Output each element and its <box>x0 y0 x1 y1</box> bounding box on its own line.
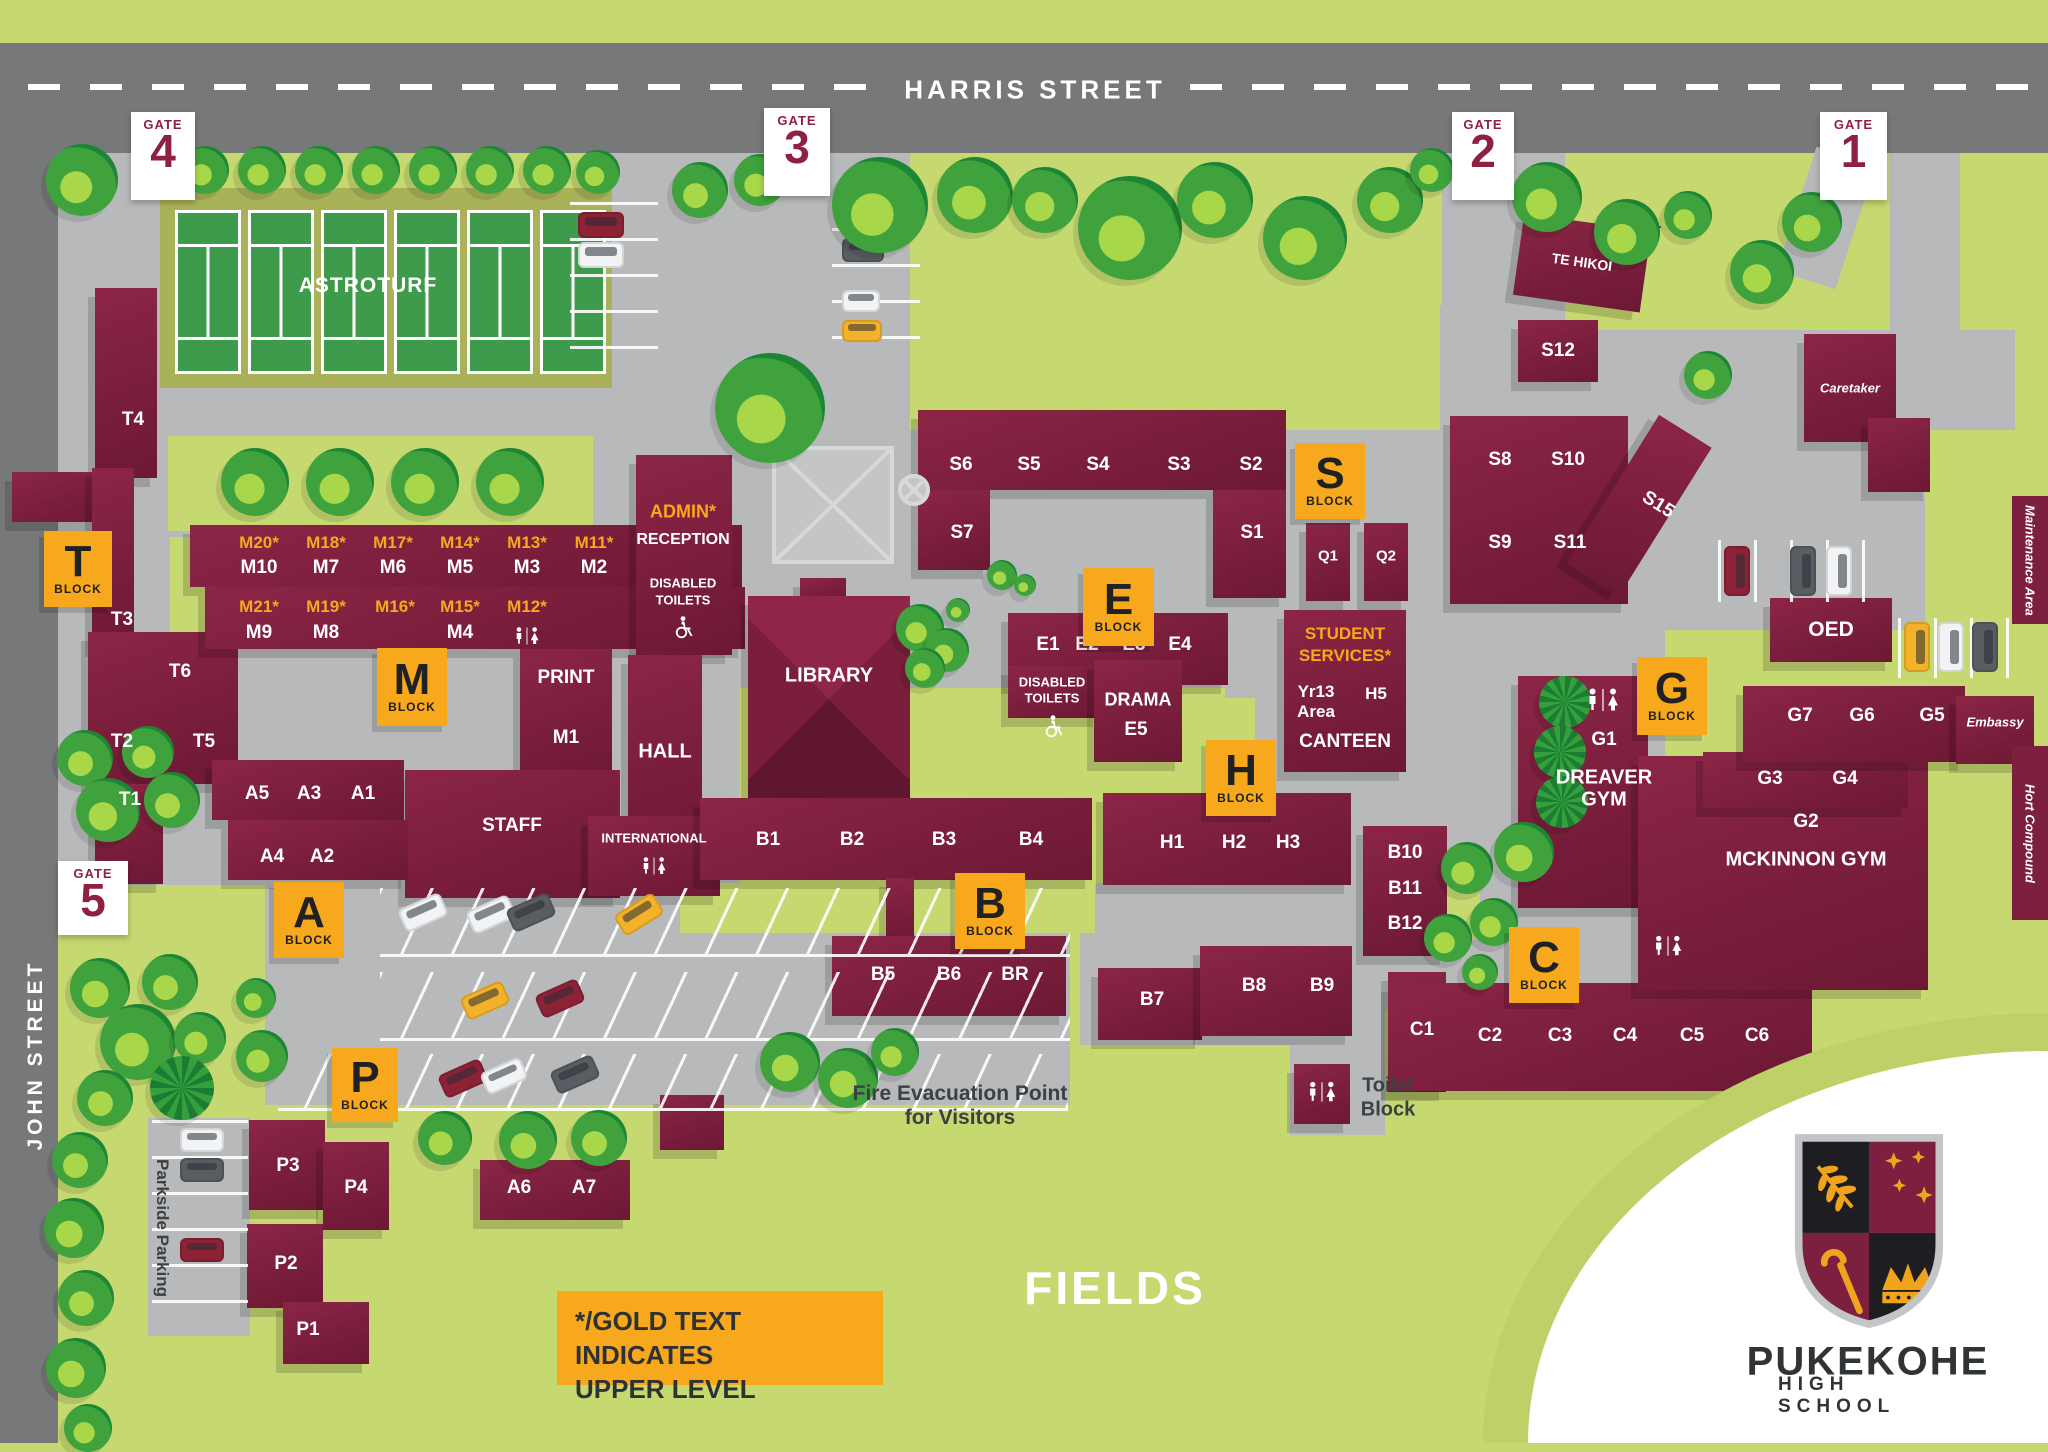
badge-letter: P <box>350 1058 379 1098</box>
badge-word: BLOCK <box>54 582 102 596</box>
room-label: T6 <box>169 661 191 683</box>
staff-label: STAFF <box>482 815 542 837</box>
road-centerline <box>1190 84 2048 90</box>
tree <box>1684 351 1732 399</box>
disabled-toilets-label: TOILETS <box>656 593 711 608</box>
tree <box>466 146 514 194</box>
badge-word: BLOCK <box>285 933 333 947</box>
oed-label: OED <box>1808 618 1854 642</box>
legend-gold-text: */GOLD TEXT INDICATES UPPER LEVEL <box>557 1291 883 1385</box>
hort-compound-label: Hort Compound <box>2023 784 2038 883</box>
room-label: C5 <box>1680 1025 1704 1047</box>
toilet-icon <box>1586 688 1620 712</box>
disabled-toilets-label: TOILETS <box>1025 691 1080 706</box>
car <box>842 320 882 342</box>
room-label: G3 <box>1757 768 1782 790</box>
room-label: G7 <box>1787 705 1812 727</box>
room-label: G5 <box>1919 705 1944 727</box>
gate-number: 3 <box>764 128 830 167</box>
tree <box>571 1110 627 1166</box>
room-label: G6 <box>1849 705 1874 727</box>
tree <box>1664 191 1712 239</box>
toilet-icon <box>1307 1081 1337 1102</box>
caretaker-label: Caretaker <box>1820 381 1880 396</box>
room-label-upper: M13* <box>507 533 547 553</box>
badge-p-block: PBLOCK <box>332 1048 398 1122</box>
gate-2-sign: GATE2 <box>1452 112 1514 200</box>
tree <box>1730 240 1794 304</box>
reception-label: RECEPTION <box>636 531 729 549</box>
badge-word: BLOCK <box>966 924 1014 938</box>
badge-letter: C <box>1528 938 1560 978</box>
badge-b-block: BBLOCK <box>955 873 1025 949</box>
tree <box>77 1070 133 1126</box>
car <box>1724 546 1750 596</box>
dreaver-gym-label: DREAVER <box>1556 767 1652 790</box>
room-label: M1 <box>553 727 579 749</box>
tennis-court <box>467 210 533 374</box>
room-label: B5 <box>871 964 895 986</box>
john-street-label: JOHN STREET <box>24 959 48 1150</box>
room-label-upper: M21* <box>239 597 279 617</box>
lawn <box>1925 430 2015 630</box>
room-label: H1 <box>1160 832 1184 854</box>
room-label: S12 <box>1541 340 1575 362</box>
tree <box>46 144 118 216</box>
tree <box>672 162 728 218</box>
room-label: C3 <box>1548 1025 1572 1047</box>
room-label: T5 <box>193 731 215 753</box>
car <box>578 212 624 238</box>
road-centerline <box>28 84 878 90</box>
embassy-label: Embassy <box>1966 715 2023 730</box>
tree <box>418 1111 472 1165</box>
tree <box>144 772 200 828</box>
legend-line1: */GOLD TEXT INDICATES <box>575 1305 865 1373</box>
yr13-area-label: Area <box>1297 702 1335 722</box>
tree <box>409 146 457 194</box>
badge-letter: S <box>1315 454 1344 494</box>
fire-evacuation-label: Fire Evacuation Point <box>853 1082 1068 1106</box>
room-label: M9 <box>246 622 272 644</box>
building-caretaker <box>1868 418 1930 492</box>
building-a6-a7 <box>480 1160 630 1220</box>
room-label: A2 <box>310 846 334 868</box>
room-label: S9 <box>1488 532 1511 554</box>
room-label: B6 <box>937 964 961 986</box>
badge-word: BLOCK <box>1217 791 1265 805</box>
room-label: A6 <box>507 1177 531 1199</box>
room-label: A1 <box>351 783 375 805</box>
room-label: S3 <box>1167 454 1190 476</box>
toilet-block-label: Toilet <box>1362 1075 1414 1098</box>
room-label: M4 <box>447 622 473 644</box>
tree <box>1410 148 1454 192</box>
room-label: B3 <box>932 829 956 851</box>
room-label: S2 <box>1239 454 1262 476</box>
badge-g-block: GBLOCK <box>1637 657 1707 735</box>
tree <box>1012 167 1078 233</box>
gate-number: 5 <box>58 881 128 920</box>
badge-letter: A <box>293 893 325 933</box>
mckinnon-gym-label: MCKINNON GYM <box>1725 849 1886 872</box>
car <box>578 242 624 268</box>
tree <box>832 157 928 253</box>
building-drama <box>1094 660 1182 762</box>
badge-c-block: CBLOCK <box>1509 927 1579 1003</box>
tennis-court <box>175 210 241 374</box>
building-s-block <box>1213 490 1286 598</box>
room-label-upper: M14* <box>440 533 480 553</box>
badge-h-block: HBLOCK <box>1206 740 1276 816</box>
room-label: H2 <box>1222 832 1246 854</box>
car <box>1972 622 1998 672</box>
badge-word: BLOCK <box>341 1098 389 1112</box>
building-library <box>748 596 910 802</box>
room-label-upper: M12* <box>507 597 547 617</box>
room-label: M10 <box>241 557 278 579</box>
tree <box>44 1198 104 1258</box>
tree <box>576 150 620 194</box>
tree <box>1462 954 1498 990</box>
tree <box>1512 162 1582 232</box>
tree <box>1263 196 1347 280</box>
admin-label: ADMIN* <box>650 502 716 523</box>
drama-label: DRAMA <box>1105 690 1172 711</box>
tree <box>295 146 343 194</box>
room-label: B4 <box>1019 829 1043 851</box>
car <box>1938 622 1964 672</box>
tree <box>1014 574 1036 596</box>
tree <box>1441 842 1493 894</box>
room-label: T3 <box>111 609 133 631</box>
room-label: S7 <box>950 522 973 544</box>
yr13-area-label: Yr13 <box>1298 682 1335 702</box>
room-label: S10 <box>1551 449 1585 471</box>
room-label: B12 <box>1388 913 1423 935</box>
room-label: B10 <box>1388 842 1423 864</box>
gate-number: 2 <box>1452 132 1514 171</box>
room-label: H5 <box>1365 684 1387 704</box>
room-label: M8 <box>313 622 339 644</box>
room-label: M6 <box>380 557 406 579</box>
tree <box>142 954 198 1010</box>
disabled-toilets-label: DISABLED <box>1019 675 1085 690</box>
path <box>1890 153 1960 338</box>
tree <box>236 978 276 1018</box>
room-label: H3 <box>1276 832 1300 854</box>
tree <box>352 146 400 194</box>
harris-street-label: HARRIS STREET <box>904 75 1165 106</box>
maintenance-area-label: Maintenance Area <box>2023 505 2038 616</box>
car <box>842 290 880 312</box>
tree <box>52 1132 108 1188</box>
room-label: S1 <box>1240 522 1263 544</box>
toilet-icon <box>514 627 540 645</box>
room-label: S4 <box>1086 454 1109 476</box>
badge-s-block: SBLOCK <box>1295 443 1365 519</box>
badge-letter: B <box>974 884 1006 924</box>
tree <box>64 1404 112 1452</box>
gate-3-sign: GATE3 <box>764 108 830 196</box>
tree <box>221 448 289 516</box>
tree <box>523 146 571 194</box>
toilet-block-label: Block <box>1361 1099 1415 1122</box>
car <box>1826 546 1852 596</box>
tree <box>905 648 945 688</box>
tree <box>1494 822 1554 882</box>
room-label: C4 <box>1613 1025 1637 1047</box>
tree <box>58 1270 114 1326</box>
toilet-icon <box>641 857 667 875</box>
car <box>180 1128 224 1152</box>
student-services-label: SERVICES* <box>1299 646 1391 666</box>
room-label: G4 <box>1832 768 1857 790</box>
room-label: B11 <box>1388 878 1422 900</box>
wheelchair-icon <box>1041 714 1065 738</box>
hort-compound-box: Hort Compound <box>2012 746 2048 920</box>
tree <box>715 353 825 463</box>
badge-letter: E <box>1104 580 1133 620</box>
room-label: E4 <box>1168 634 1191 656</box>
tree <box>1078 176 1182 280</box>
astroturf-label: ASTROTURF <box>299 274 438 298</box>
room-label: B9 <box>1310 975 1334 997</box>
room-label: T2 <box>111 731 133 753</box>
tree <box>1424 914 1472 962</box>
badge-letter: M <box>394 660 431 700</box>
badge-letter: G <box>1655 669 1689 709</box>
hall-label: HALL <box>638 741 691 764</box>
room-label: C1 <box>1410 1019 1434 1041</box>
room-label: S11 <box>1554 532 1587 554</box>
room-label: A4 <box>260 846 284 868</box>
room-label: S8 <box>1488 449 1511 471</box>
room-label: B1 <box>756 829 780 851</box>
dreaver-gym-label: GYM <box>1581 789 1627 812</box>
room-label: Q2 <box>1376 548 1396 565</box>
room-label: M7 <box>313 557 339 579</box>
student-services-label: STUDENT <box>1305 624 1385 644</box>
courtyard <box>772 446 894 564</box>
badge-a-block: ABLOCK <box>274 882 344 958</box>
car <box>180 1238 224 1262</box>
canteen-label: CANTEEN <box>1299 731 1391 753</box>
tree <box>937 157 1013 233</box>
badge-word: BLOCK <box>1095 620 1143 634</box>
tree <box>150 1056 214 1120</box>
room-label-upper: M18* <box>306 533 346 553</box>
tree <box>1539 676 1591 728</box>
maintenance-area-box: Maintenance Area <box>2012 496 2048 624</box>
fields-label: FIELDS <box>1024 1261 1206 1315</box>
badge-t-block: TBLOCK <box>44 531 112 607</box>
room-label: C6 <box>1745 1025 1769 1047</box>
parkside-parking-label: Parkside Parking <box>152 1159 172 1297</box>
room-label: PRINT <box>538 667 595 689</box>
library-label: LIBRARY <box>785 665 873 688</box>
logo-school-subtitle: HIGH SCHOOL <box>1778 1374 1958 1418</box>
badge-word: BLOCK <box>1648 709 1696 723</box>
room-label: M2 <box>581 557 607 579</box>
room-label: A7 <box>572 1177 596 1199</box>
room-label-upper: M19* <box>306 597 346 617</box>
room-label-upper: M11* <box>575 533 614 553</box>
car <box>1904 622 1930 672</box>
room-label: P3 <box>276 1155 299 1177</box>
room-label: S5 <box>1017 454 1040 476</box>
gate-number: 1 <box>1820 132 1887 171</box>
room-label: M3 <box>514 557 540 579</box>
room-label: A5 <box>245 783 269 805</box>
tree <box>1594 199 1660 265</box>
tree <box>946 598 970 622</box>
car <box>180 1158 224 1182</box>
toilet-icon <box>1653 935 1683 956</box>
campus-map: { "title": "Pukekohe High School campus … <box>0 0 2048 1443</box>
room-label: G2 <box>1793 811 1818 833</box>
room-label: T4 <box>122 409 144 431</box>
fountain <box>898 474 930 506</box>
room-label: M5 <box>447 557 473 579</box>
john-street-road <box>0 153 58 1443</box>
room-label: E1 <box>1036 634 1059 656</box>
room-label: B8 <box>1242 975 1266 997</box>
gate-4-sign: GATE4 <box>131 112 195 200</box>
legend-line2: UPPER LEVEL <box>575 1373 865 1407</box>
badge-letter: H <box>1225 751 1257 791</box>
room-label: P2 <box>274 1253 297 1275</box>
badge-m-block: MBLOCK <box>377 648 447 726</box>
room-label: T1 <box>119 789 141 811</box>
wheelchair-icon <box>671 615 695 639</box>
car <box>1790 546 1816 596</box>
tree <box>987 560 1017 590</box>
badge-word: BLOCK <box>1520 978 1568 992</box>
room-label: BR <box>1001 964 1028 986</box>
room-label: G1 <box>1591 729 1616 751</box>
badge-e-block: EBLOCK <box>1083 568 1154 646</box>
room-label-upper: M17* <box>373 533 413 553</box>
badge-word: BLOCK <box>1306 494 1354 508</box>
tree <box>46 1338 106 1398</box>
room-label: E5 <box>1124 719 1147 741</box>
tree <box>871 1028 919 1076</box>
tree <box>499 1111 557 1169</box>
school-crest <box>1793 1132 1945 1332</box>
fire-evacuation-label: for Visitors <box>905 1106 1015 1130</box>
room-label-upper: M20* <box>239 533 279 553</box>
room-label: Q1 <box>1318 548 1338 565</box>
gate-1-sign: GATE1 <box>1820 112 1887 200</box>
building-t-block <box>95 288 157 478</box>
disabled-toilets-label: DISABLED <box>650 576 716 591</box>
room-label: P4 <box>344 1177 367 1199</box>
tree <box>1782 192 1842 252</box>
tree <box>236 1030 288 1082</box>
building-s-block <box>918 410 1286 490</box>
room-label: B2 <box>840 829 864 851</box>
room-label: S6 <box>949 454 972 476</box>
badge-word: BLOCK <box>388 700 436 714</box>
gate-5-sign: GATE5 <box>58 861 128 935</box>
room-label: P1 <box>296 1319 319 1341</box>
room-label: B7 <box>1140 989 1164 1011</box>
room-label-upper: M15* <box>440 597 480 617</box>
tree <box>476 448 544 516</box>
room-label: A3 <box>297 783 321 805</box>
tree <box>760 1032 820 1092</box>
tree <box>238 146 286 194</box>
badge-letter: T <box>65 542 92 582</box>
tree <box>1177 162 1253 238</box>
international-label: INTERNATIONAL <box>601 831 706 846</box>
room-label: C2 <box>1478 1025 1502 1047</box>
gate-number: 4 <box>131 132 195 171</box>
room-label-upper: M16* <box>375 597 415 617</box>
tree <box>306 448 374 516</box>
tree <box>391 448 459 516</box>
